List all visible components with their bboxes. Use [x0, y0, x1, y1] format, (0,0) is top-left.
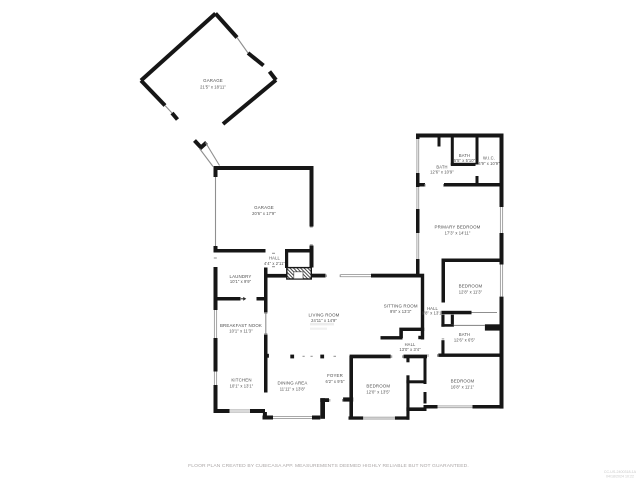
svg-text:4'4" x 2'11": 4'4" x 2'11" — [264, 261, 286, 266]
svg-text:BEDROOM: BEDROOM — [459, 284, 483, 289]
svg-text:04/18/2024 10:22: 04/18/2024 10:22 — [606, 475, 634, 479]
svg-text:21'5" x 18'11": 21'5" x 18'11" — [200, 85, 226, 90]
svg-text:13'0" x 3'4": 13'0" x 3'4" — [399, 347, 421, 352]
svg-text:BEDROOM: BEDROOM — [366, 384, 390, 389]
svg-text:FOYER: FOYER — [327, 373, 343, 378]
svg-text:24'11" x 14'9": 24'11" x 14'9" — [311, 318, 337, 323]
svg-text:12'6" x 6'5": 12'6" x 6'5" — [454, 338, 476, 343]
svg-text:10'1" x 11'3": 10'1" x 11'3" — [229, 329, 253, 334]
svg-text:10'1" x 13'1": 10'1" x 13'1" — [230, 384, 254, 389]
svg-text:FLOOR PLAN CREATED BY CUBICASA: FLOOR PLAN CREATED BY CUBICASA APP. MEAS… — [188, 463, 469, 469]
svg-text:CC-US-2400318-1A: CC-US-2400318-1A — [604, 470, 637, 474]
svg-text:KITCHEN: KITCHEN — [231, 378, 251, 383]
svg-text:5'5" x 5'10": 5'5" x 5'10" — [454, 158, 476, 163]
svg-text:PRIMARY BEDROOM: PRIMARY BEDROOM — [434, 225, 480, 230]
svg-text:6'2" x 9'5": 6'2" x 9'5" — [326, 379, 345, 384]
svg-text:LAUNDRY: LAUNDRY — [230, 274, 252, 279]
svg-text:20'6" x 17'9": 20'6" x 17'9" — [252, 211, 276, 216]
svg-text:17'3" x 14'11": 17'3" x 14'11" — [445, 231, 471, 236]
svg-text:W.I.C.: W.I.C. — [483, 156, 495, 161]
svg-text:SITTING ROOM: SITTING ROOM — [384, 303, 418, 308]
svg-text:12'0" x 13'5": 12'0" x 13'5" — [366, 390, 390, 395]
svg-text:GARAGE: GARAGE — [203, 78, 223, 83]
svg-text:9'8" x 13'3": 9'8" x 13'3" — [390, 309, 412, 314]
svg-text:16'8" x 11'1": 16'8" x 11'1" — [451, 385, 475, 390]
svg-text:DINING AREA: DINING AREA — [278, 381, 308, 386]
svg-text:BEDROOM: BEDROOM — [451, 379, 475, 384]
svg-text:BATH: BATH — [436, 164, 447, 169]
svg-text:BATH: BATH — [459, 332, 470, 337]
svg-text:9'8" x 13'1": 9'8" x 13'1" — [422, 310, 444, 315]
svg-text:12'8" x 11'3": 12'8" x 11'3" — [459, 290, 483, 295]
svg-text:12'6" x 10'9": 12'6" x 10'9" — [430, 170, 454, 175]
svg-text:BREAKFAST NOOK: BREAKFAST NOOK — [220, 323, 262, 328]
svg-text:10'1" x 9'9": 10'1" x 9'9" — [230, 279, 252, 284]
svg-text:GARAGE: GARAGE — [254, 205, 274, 210]
svg-text:11'11" x 13'8": 11'11" x 13'8" — [280, 387, 306, 392]
svg-text:4'9" x 10'9": 4'9" x 10'9" — [478, 161, 500, 166]
svg-text:LIVING ROOM: LIVING ROOM — [309, 313, 340, 318]
svg-text:HALL: HALL — [269, 256, 280, 261]
